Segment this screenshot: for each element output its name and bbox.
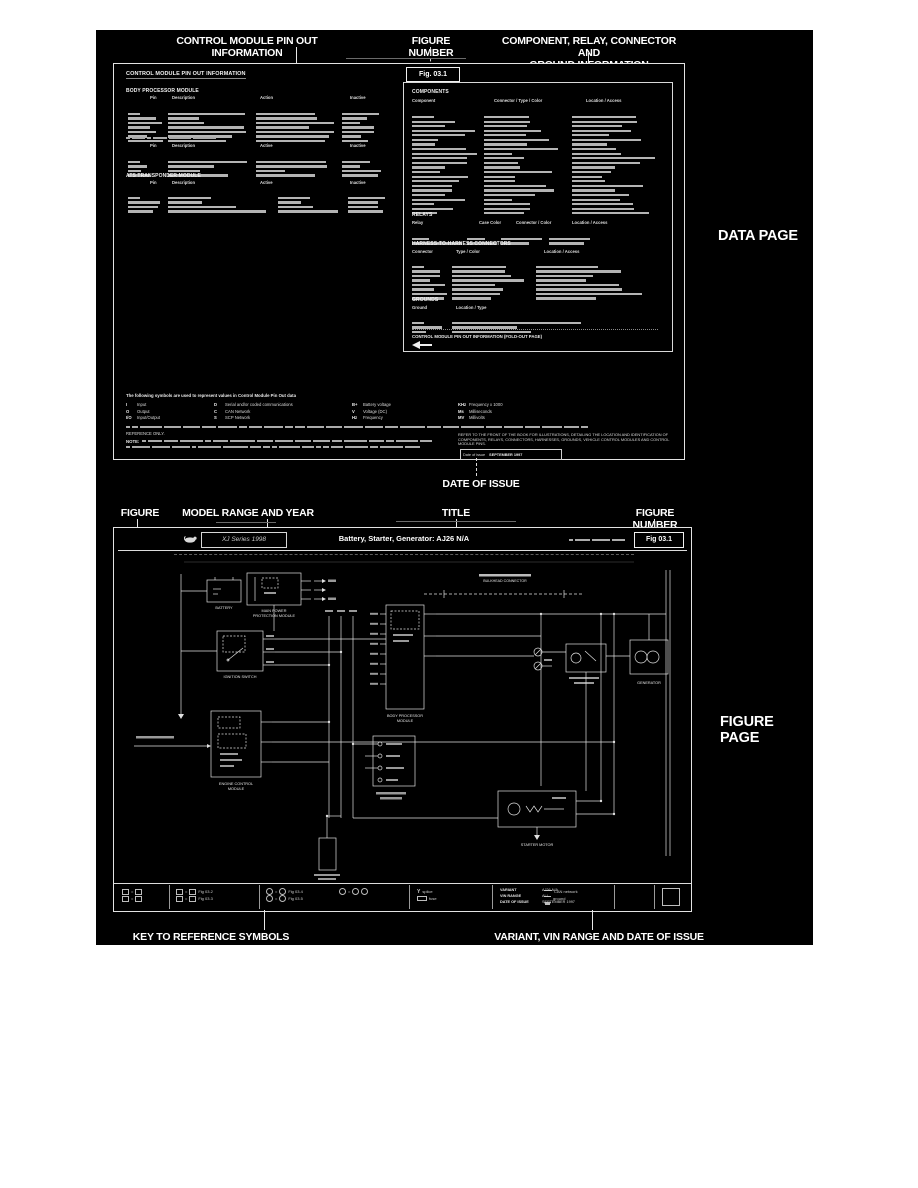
battery-symbol: BATTERY <box>207 577 241 610</box>
leader-line <box>264 910 265 930</box>
component-info-panel: COMPONENTS Component Connector / Type / … <box>403 82 673 352</box>
variant-row: VARIANTAJ26 N/A <box>500 888 558 892</box>
legend-meaning: CAN Network <box>225 409 250 414</box>
note-text <box>142 440 434 442</box>
key-separator <box>614 885 615 909</box>
col-header: Location / Access <box>586 98 621 103</box>
reference-only-text: REFERENCE ONLY. <box>126 431 165 436</box>
col-header: Location / Access <box>572 220 607 225</box>
col-header: Pin <box>150 95 157 100</box>
col-header: Relay <box>412 220 423 225</box>
annotation-control-module-pinout: CONTROL MODULE PIN OUT INFORMATION <box>142 35 352 59</box>
legend-code: MV <box>458 415 469 420</box>
ground-rail <box>178 574 217 719</box>
annotation-date-of-issue: DATE OF ISSUE <box>426 478 536 490</box>
table-rows <box>128 150 388 168</box>
leader-line <box>592 910 593 930</box>
svg-text:BODY PROCESSOR: BODY PROCESSOR <box>387 714 423 718</box>
key-group-wire-symbols: Ysplice fuse <box>417 888 437 902</box>
table-rows <box>412 105 662 206</box>
feed-arrows <box>314 579 336 601</box>
key-separator <box>654 885 655 909</box>
col-header: Connector / Color <box>516 220 551 225</box>
col-header: Location / Access <box>544 249 579 254</box>
ats-section-title: ATS TRANSPONDER MODULE <box>126 173 201 179</box>
col-header: Active <box>260 180 273 185</box>
legend-code: C <box>214 409 225 414</box>
key-group-grid: = = <box>122 888 142 902</box>
legend-item: MsMilliseconds <box>458 409 492 414</box>
legend-meaning: Input <box>137 402 146 407</box>
figure-title: Battery, Starter, Generator: AJ26 N/A <box>264 534 544 543</box>
power-protection-module: MAIN POWER PROTECTION MODULE <box>247 573 311 618</box>
annotation-key-symbols: KEY TO REFERENCE SYMBOLS <box>123 931 299 943</box>
data-page: CONTROL MODULE PIN OUT INFORMATION Fig. … <box>113 63 685 460</box>
legend-intro: The following symbols are used to repres… <box>126 393 296 398</box>
legend-meaning: Frequency x 1000 <box>469 402 503 407</box>
table-rows <box>412 255 662 291</box>
variant-row: DATE OF ISSUESEPTEMBER 1997 <box>500 900 575 904</box>
variant-row-value: SEPTEMBER 1997 <box>542 900 575 904</box>
table-rows <box>412 227 649 236</box>
svg-text:IGNITION SWITCH: IGNITION SWITCH <box>224 675 257 679</box>
col-header: Connector <box>412 249 433 254</box>
variant-row-label: VARIANT <box>500 888 542 892</box>
col-header: Action <box>260 95 273 100</box>
figure-page-callout: FIGURE PAGE <box>720 714 813 746</box>
junction-dots <box>326 613 615 817</box>
date-of-issue-box-label: Date of issue <box>463 453 485 457</box>
legend-meaning: Millivolts <box>469 415 485 420</box>
annotation-model-range: MODEL RANGE AND YEAR <box>182 507 314 519</box>
annotation-figure: FIGURE <box>114 507 166 519</box>
note-text <box>126 446 422 448</box>
scan-artifact <box>346 58 466 59</box>
key-separator <box>492 885 493 909</box>
foldout-arrow-icon <box>412 341 432 349</box>
divider <box>412 329 658 330</box>
col-header: Inactive <box>350 95 366 100</box>
legend-item: OOutput <box>126 409 150 414</box>
starter-relay <box>566 644 630 791</box>
figure-page: XJ Series 1998 Battery, Starter, Generat… <box>113 527 692 912</box>
key-ref: Fig 03.5 <box>288 896 302 901</box>
col-header: Active <box>260 143 273 148</box>
svg-text:GENERATOR: GENERATOR <box>637 681 661 685</box>
module2-section-title <box>126 137 218 139</box>
col-header: Description <box>172 180 195 185</box>
col-header: Component <box>412 98 435 103</box>
legend-item: DSerial and/or coded communications <box>214 402 293 407</box>
leader-line <box>476 458 477 476</box>
svg-text:MODULE: MODULE <box>228 787 245 791</box>
col-header: Type / Color <box>456 249 480 254</box>
legend-code: V <box>352 409 363 414</box>
col-header: Inactive <box>350 180 366 185</box>
legend-item: MVMillivolts <box>458 415 485 420</box>
col-header: Connector / Type / Color <box>494 98 542 103</box>
col-header: Description <box>172 143 195 148</box>
key-symbol-label: splice <box>422 889 432 894</box>
h2h-title: HARNESS-TO-HARNESS CONNECTORS <box>412 241 511 247</box>
key-group-figure-refs-2: =Fig 03.4 =Fig 03.5 <box>266 888 303 902</box>
legend-item: I/OInput/Output <box>126 415 160 420</box>
legend-meaning: SCP Network <box>225 415 250 420</box>
legend-meaning: Frequency <box>363 415 383 420</box>
crank-signal <box>134 736 211 748</box>
scan-canvas: CONTROL MODULE PIN OUT INFORMATION FIGUR… <box>96 30 813 945</box>
legend-item: B+Battery voltage <box>352 402 391 407</box>
legend-item: CCAN Network <box>214 409 250 414</box>
key-separator <box>259 885 260 909</box>
legend-code: I/O <box>126 415 137 420</box>
col-header: Location / Type <box>456 305 486 310</box>
legend-code: Hz <box>352 415 363 420</box>
wiring-buses <box>325 610 357 818</box>
right-rail <box>666 570 670 856</box>
table-rows <box>128 102 388 134</box>
leader-line <box>296 47 297 63</box>
scan-artifact <box>396 521 516 522</box>
note-label: NOTE: <box>126 439 139 444</box>
generator-symbol: GENERATOR <box>630 614 668 685</box>
page-background: { "annotations": { "control_module_label… <box>0 0 918 1188</box>
legend-meaning: Milliseconds <box>469 409 492 414</box>
eds-module <box>353 736 415 800</box>
key-separator <box>169 885 170 909</box>
legend-item: SSCP Network <box>214 415 250 420</box>
legend-code: O <box>126 409 137 414</box>
small-component-box <box>314 816 341 880</box>
bpm-section-title: BODY PROCESSOR MODULE <box>126 88 199 94</box>
date-of-issue-box-value: SEPTEMBER 1997 <box>489 453 522 457</box>
key-ref: Fig 03.2 <box>198 889 212 894</box>
legend-meaning: Serial and/or coded communications <box>225 402 293 407</box>
figure-number-box: Fig. 03.1 <box>406 67 460 82</box>
relays-title: RELAYS <box>412 212 432 218</box>
col-header: Case Color <box>479 220 501 225</box>
grounds-title: GROUNDS <box>412 297 438 303</box>
legend-code: I <box>126 402 137 407</box>
data-page-callout: DATA PAGE <box>718 228 798 244</box>
svg-text:STARTER MOTOR: STARTER MOTOR <box>521 843 554 847</box>
connector-symbols <box>534 648 566 670</box>
svg-text:BULKHEAD CONNECTOR: BULKHEAD CONNECTOR <box>483 579 527 583</box>
body-processor-module: BODY PROCESSOR MODULE <box>370 605 436 723</box>
legend-meaning: Voltage (DC) <box>363 409 387 414</box>
key-ref: Fig 03.3 <box>198 896 212 901</box>
scan-artifact <box>216 522 276 523</box>
header-rule <box>118 550 687 551</box>
table-rows <box>128 186 388 204</box>
legend-code: KHz <box>458 402 469 407</box>
legend-code: B+ <box>352 402 363 407</box>
bulkhead-connector-note: BULKHEAD CONNECTOR <box>424 574 584 598</box>
annotation-figure-number-top: FIGURE NUMBER <box>388 35 474 59</box>
col-header: Pin <box>150 143 157 148</box>
legend-meaning: Input/Output <box>137 415 160 420</box>
key-group-connector: = <box>339 888 368 895</box>
figure-number-box-2: Fig 03.1 <box>634 532 684 548</box>
caution-text <box>126 426 590 428</box>
wiring-diagram: BATTERY MAIN POWER PROTECTION MODULE <box>114 556 691 882</box>
key-strip-rule <box>114 883 691 884</box>
legend-item: HzFrequency <box>352 415 383 420</box>
annotation-variant-vin: VARIANT, VIN RANGE AND DATE OF ISSUE <box>494 931 704 943</box>
svg-text:BATTERY: BATTERY <box>215 606 233 610</box>
legend-code: D <box>214 402 225 407</box>
svg-text:MODULE: MODULE <box>397 719 414 723</box>
variant-row: VIN RANGEALL <box>500 894 549 898</box>
jaguar-logo-icon <box>184 533 197 546</box>
col-header: Ground <box>412 305 427 310</box>
foldout-note: CONTROL MODULE PIN OUT INFORMATION (FOLD… <box>412 334 664 339</box>
data-page-title: CONTROL MODULE PIN OUT INFORMATION <box>126 71 246 79</box>
col-header: Inactive <box>350 143 366 148</box>
annotation-title: TITLE <box>437 507 475 519</box>
col-header: Pin <box>150 180 157 185</box>
refer-text: REFER TO THE FRONT OF THE BOOK FOR ILLUS… <box>458 433 670 447</box>
header-rule-2 <box>174 554 634 555</box>
key-group-figure-refs-1: =Fig 03.2 =Fig 03.3 <box>176 888 213 902</box>
legend-code: Ms <box>458 409 469 414</box>
svg-text:ENGINE CONTROL: ENGINE CONTROL <box>219 782 253 786</box>
key-symbol-label: fuse <box>429 896 437 901</box>
legend-meaning: Battery voltage <box>363 402 391 407</box>
variant-row-label: VIN RANGE <box>500 894 542 898</box>
legend-item: KHzFrequency x 1000 <box>458 402 503 407</box>
legend-item: VVoltage (DC) <box>352 409 387 414</box>
legend-meaning: Output <box>137 409 150 414</box>
variant-row-label: DATE OF ISSUE <box>500 900 542 904</box>
key-end-box <box>662 888 680 906</box>
engine-control-module: ENGINE CONTROL MODULE <box>211 711 272 791</box>
key-separator <box>409 885 410 909</box>
table-rows <box>412 311 622 325</box>
legend-item: IInput <box>126 402 146 407</box>
variant-row-value: AJ26 N/A <box>542 888 558 892</box>
header-small-text <box>569 539 627 541</box>
components-title: COMPONENTS <box>412 89 449 95</box>
variant-row-value: ALL <box>542 894 549 898</box>
col-header: Description <box>172 95 195 100</box>
legend-code: S <box>214 415 225 420</box>
key-ref: Fig 03.4 <box>288 889 302 894</box>
